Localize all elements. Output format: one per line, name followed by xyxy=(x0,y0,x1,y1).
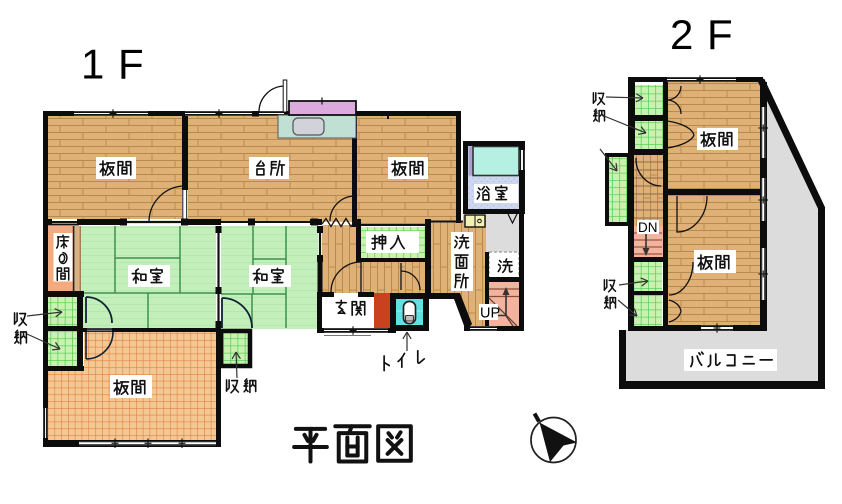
svg-text:2 F: 2 F xyxy=(670,11,734,58)
svg-text:UP: UP xyxy=(480,306,500,322)
svg-text:DN: DN xyxy=(638,220,658,235)
svg-text:1 F: 1 F xyxy=(81,41,145,88)
